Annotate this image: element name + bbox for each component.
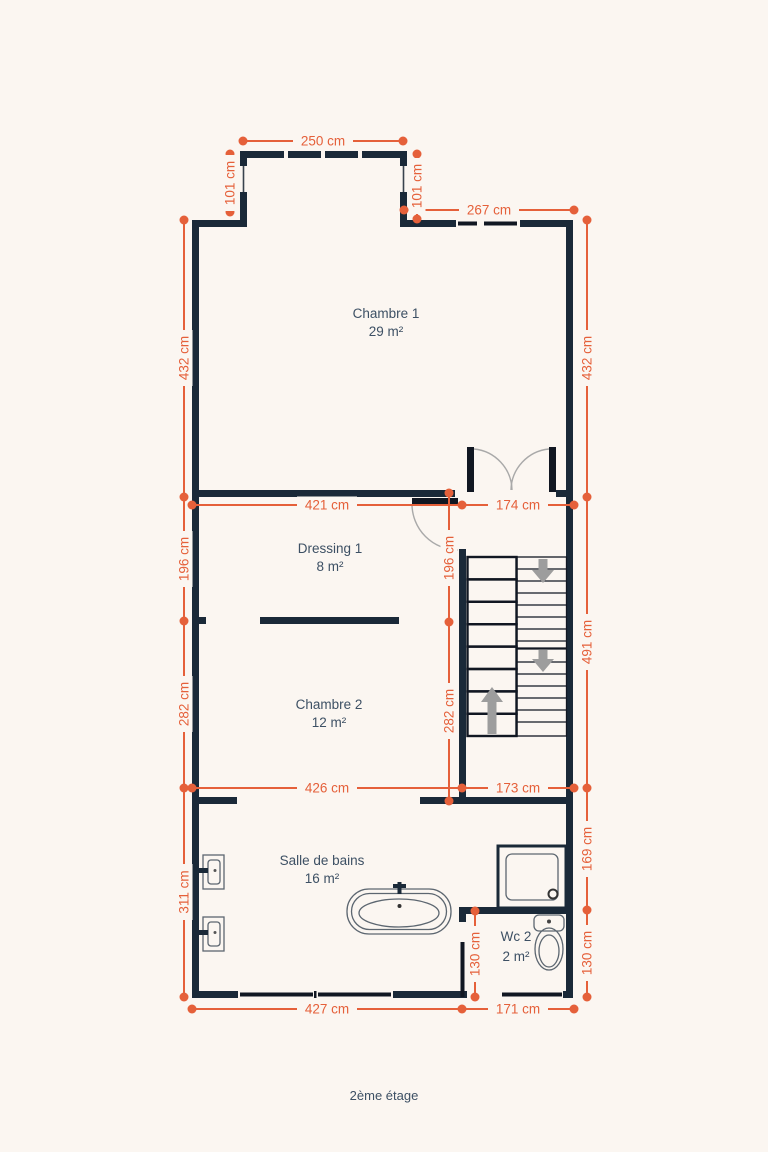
dim-label-169: 169 cm	[579, 821, 596, 877]
dim-label-101-right: 101 cm	[409, 158, 426, 214]
double-door-left-leaf	[467, 447, 474, 492]
shower-tray	[498, 846, 566, 908]
svg-text:174 cm: 174 cm	[496, 498, 540, 513]
stair-step	[468, 624, 517, 646]
floor-plan-page: 250 cm 267 cm 421 cm 174 cm 426 cm 173 c…	[0, 0, 768, 1152]
dimensions-layer: 250 cm 267 cm 421 cm 174 cm 426 cm 173 c…	[176, 133, 596, 1018]
dim-label-196-inner: 196 cm	[441, 530, 458, 586]
dim-label-421: 421 cm	[297, 497, 357, 514]
window-bump-left	[243, 166, 245, 192]
faucet-icon	[199, 868, 208, 873]
dim-label-426: 426 cm	[297, 780, 357, 797]
room-label-wc2-name: Wc 2	[501, 929, 532, 944]
room-label-chambre1-area: 29 m²	[369, 324, 404, 339]
toilet	[534, 915, 564, 970]
dim-label-171: 171 cm	[488, 1001, 548, 1018]
wall-dressing-divider	[260, 617, 399, 624]
svg-text:169 cm: 169 cm	[580, 827, 595, 871]
wall-top-right-end	[520, 220, 573, 227]
dim-label-196-left: 196 cm	[176, 531, 193, 587]
svg-text:311 cm: 311 cm	[177, 870, 192, 913]
dim-label-173: 173 cm	[488, 780, 548, 797]
wall-top-right	[400, 220, 456, 227]
stair-right-flight	[517, 557, 567, 736]
svg-text:101 cm: 101 cm	[223, 161, 238, 205]
floor-caption: 2ème étage	[350, 1088, 419, 1103]
dim-label-267: 267 cm	[459, 202, 519, 219]
dim-label-282-inner: 282 cm	[441, 683, 458, 739]
room-label-dressing1-area: 8 m²	[317, 559, 345, 574]
dim-label-101-left: 101 cm	[222, 155, 239, 211]
dim-label-432-right: 432 cm	[579, 330, 596, 386]
room-label-sdb-area: 16 m²	[305, 871, 340, 886]
svg-text:196 cm: 196 cm	[177, 537, 192, 581]
svg-text:101 cm: 101 cm	[410, 164, 425, 208]
room-label-chambre2-area: 12 m²	[312, 715, 347, 730]
dim-label-311: 311 cm	[176, 864, 193, 920]
faucet-icon	[199, 930, 208, 935]
wall-bottom-3	[563, 991, 573, 998]
svg-text:130 cm: 130 cm	[468, 932, 483, 976]
wall-wc-partition	[461, 942, 465, 997]
svg-text:250 cm: 250 cm	[301, 134, 345, 149]
dim-label-432-left: 432 cm	[176, 330, 193, 386]
staircase	[468, 557, 567, 736]
wall-bump-top-3	[325, 151, 358, 158]
wall-sdb-right	[420, 797, 573, 804]
wall-top-left	[192, 220, 247, 227]
svg-text:267 cm: 267 cm	[467, 203, 511, 218]
double-door-right-leaf	[549, 447, 556, 492]
stair-step	[468, 647, 517, 669]
svg-text:432 cm: 432 cm	[580, 336, 595, 380]
window-top-right-1	[458, 222, 477, 226]
double-door-left-arc	[474, 449, 512, 490]
dim-label-250: 250 cm	[293, 133, 353, 150]
wall-chambre1-bottom-stub	[556, 490, 573, 497]
sink-1	[199, 855, 224, 889]
room-label-chambre1-name: Chambre 1	[353, 306, 420, 321]
window-bottom-3	[502, 993, 562, 997]
bathtub	[347, 882, 451, 934]
wall-bottom-2	[393, 991, 467, 998]
shower-drain-icon	[549, 890, 558, 899]
room-label-dressing1-name: Dressing 1	[298, 541, 363, 556]
room-label-wc2-area: 2 m²	[503, 949, 531, 964]
wall-stairs-left	[459, 549, 466, 804]
window-top-right-2	[484, 222, 517, 226]
wall-bottom-1	[192, 991, 238, 998]
wall-chambre1-bottom	[192, 490, 455, 497]
room-label-chambre2-name: Chambre 2	[296, 697, 363, 712]
wall-bump-right-a	[400, 151, 407, 166]
stair-step	[468, 602, 517, 624]
svg-text:130 cm: 130 cm	[580, 931, 595, 975]
dim-label-174: 174 cm	[488, 497, 548, 514]
svg-text:171 cm: 171 cm	[496, 1002, 540, 1017]
svg-text:196 cm: 196 cm	[442, 536, 457, 580]
window-bottom-mullion	[314, 991, 317, 998]
svg-text:421 cm: 421 cm	[305, 498, 349, 513]
svg-text:426 cm: 426 cm	[305, 781, 349, 796]
wall-wc-stub	[459, 907, 466, 922]
stair-up-arrow	[481, 687, 503, 734]
door-dressing-leaf	[412, 498, 458, 504]
dim-label-130-inner: 130 cm	[467, 926, 484, 982]
stair-down-arrow-2	[532, 650, 554, 672]
room-label-sdb-name: Salle de bains	[280, 853, 365, 868]
svg-text:282 cm: 282 cm	[177, 682, 192, 726]
stair-step	[468, 579, 517, 601]
sink-2	[199, 917, 224, 951]
svg-text:432 cm: 432 cm	[177, 336, 192, 380]
dim-label-130-right: 130 cm	[579, 925, 596, 981]
stair-step	[468, 557, 517, 579]
wall-bump-top-2	[288, 151, 321, 158]
window-bottom-1	[240, 993, 313, 997]
svg-text:282 cm: 282 cm	[442, 689, 457, 733]
svg-text:427 cm: 427 cm	[305, 1002, 349, 1017]
svg-text:491 cm: 491 cm	[580, 620, 595, 664]
svg-text:173 cm: 173 cm	[496, 781, 540, 796]
wall-sdb-left-stub	[192, 797, 237, 804]
wall-bump-left-b	[240, 192, 247, 227]
dim-label-491: 491 cm	[579, 614, 596, 670]
dim-label-427: 427 cm	[297, 1001, 357, 1018]
wall-dressing-left-stub	[192, 617, 206, 624]
wall-left	[192, 220, 199, 998]
room-labels-layer: Chambre 1 29 m² Dressing 1 8 m² Chambre …	[280, 306, 532, 964]
window-bump-right	[403, 166, 405, 192]
stair-down-arrow-1	[532, 559, 554, 583]
floor-plan-drawing: 250 cm 267 cm 421 cm 174 cm 426 cm 173 c…	[0, 0, 768, 1152]
window-bottom-2	[318, 993, 391, 997]
double-door-right-arc	[511, 449, 549, 490]
wall-bump-left-a	[240, 151, 247, 166]
dim-label-282-left: 282 cm	[176, 676, 193, 732]
